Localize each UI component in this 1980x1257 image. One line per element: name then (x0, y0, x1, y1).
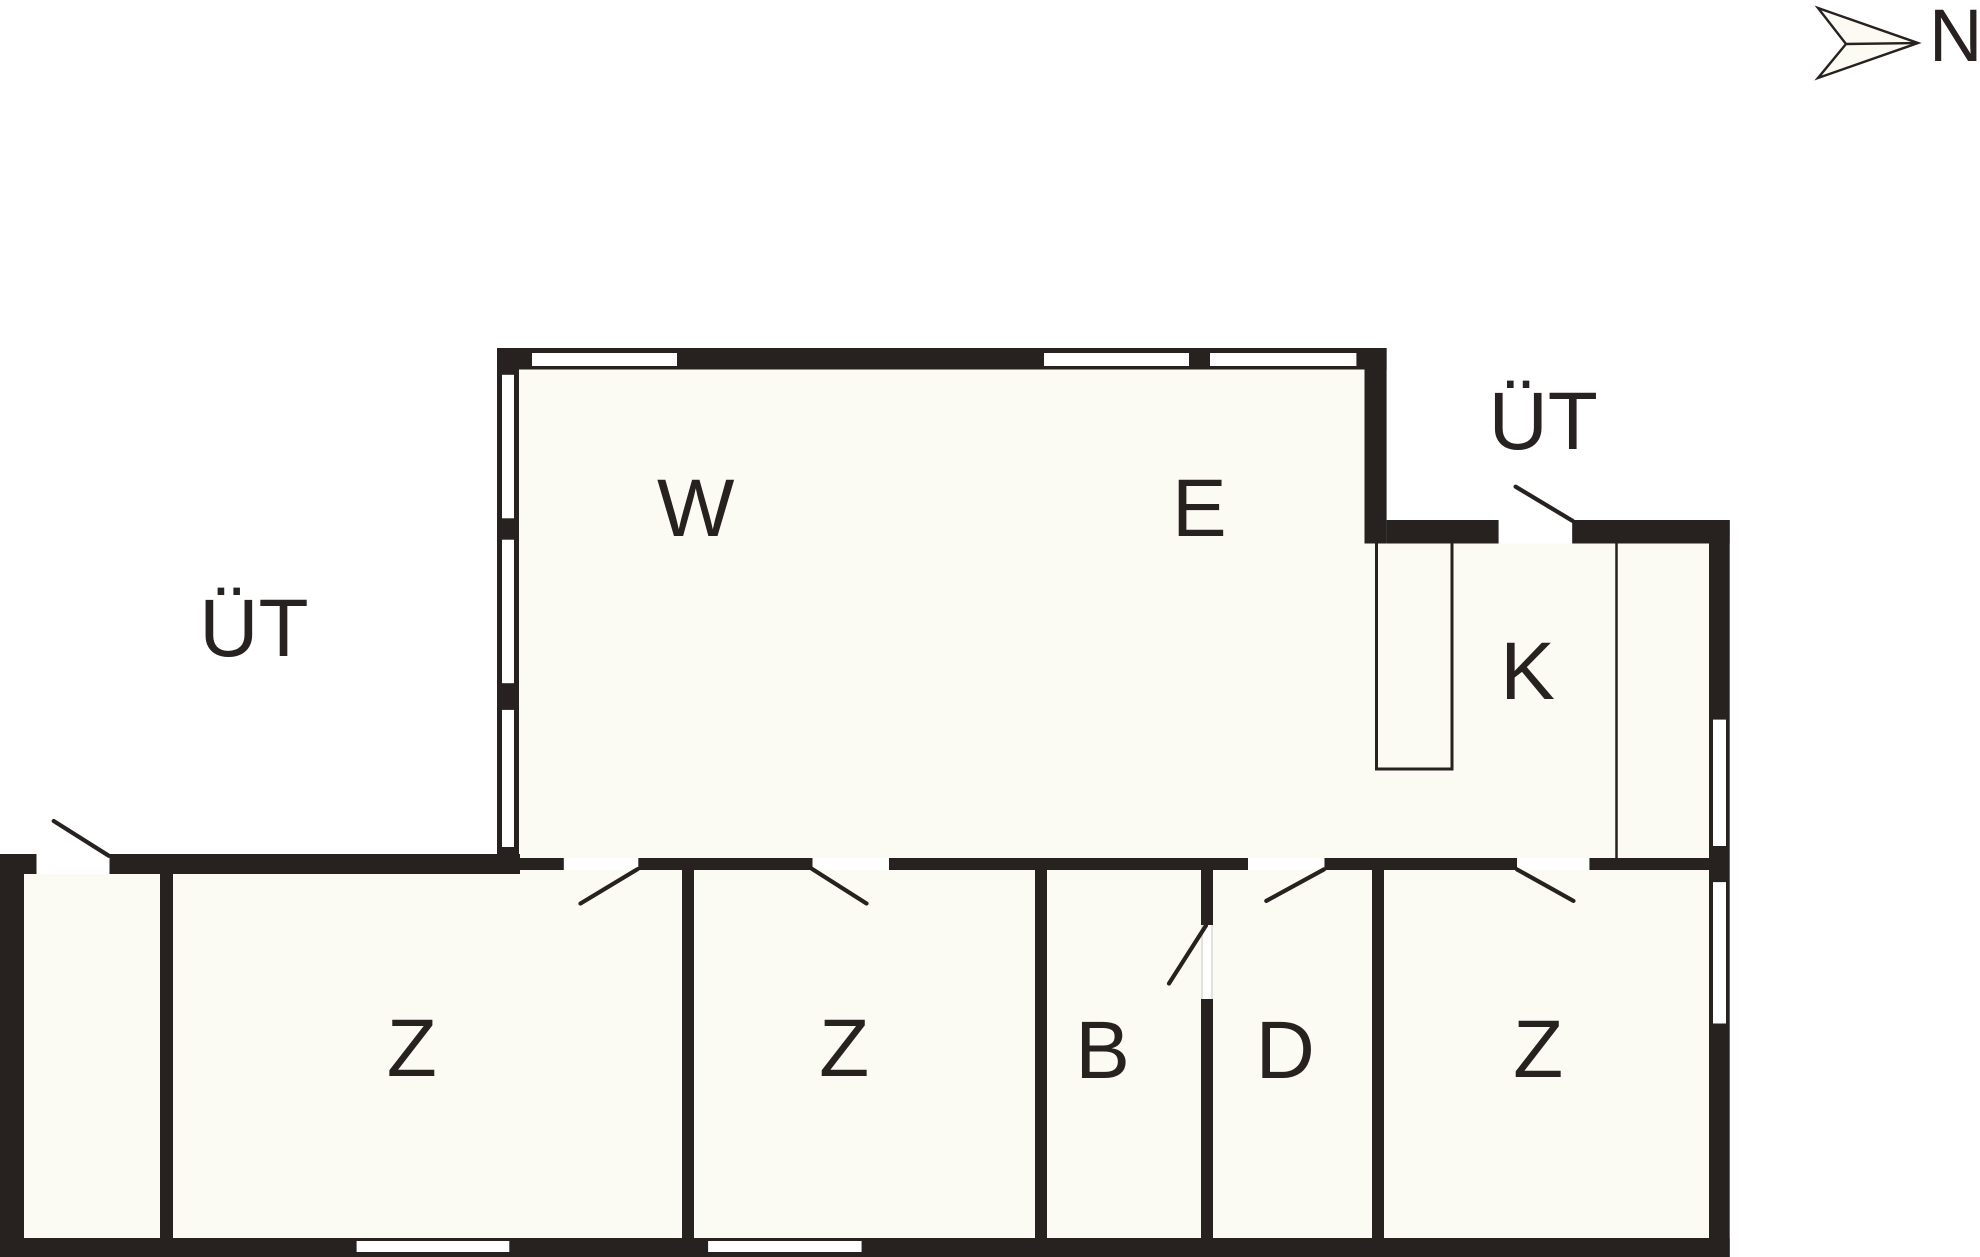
svg-text:B: B (1075, 1005, 1130, 1096)
svg-text:Z: Z (1513, 1004, 1563, 1095)
svg-text:ÜT: ÜT (199, 583, 308, 674)
svg-text:W: W (657, 463, 735, 554)
svg-text:D: D (1256, 1005, 1315, 1096)
svg-text:N: N (1929, 0, 1980, 77)
svg-text:ÜT: ÜT (1489, 376, 1598, 467)
svg-text:E: E (1172, 463, 1227, 554)
svg-text:Z: Z (819, 1003, 869, 1094)
svg-text:K: K (1500, 626, 1555, 717)
svg-text:Z: Z (387, 1003, 437, 1094)
